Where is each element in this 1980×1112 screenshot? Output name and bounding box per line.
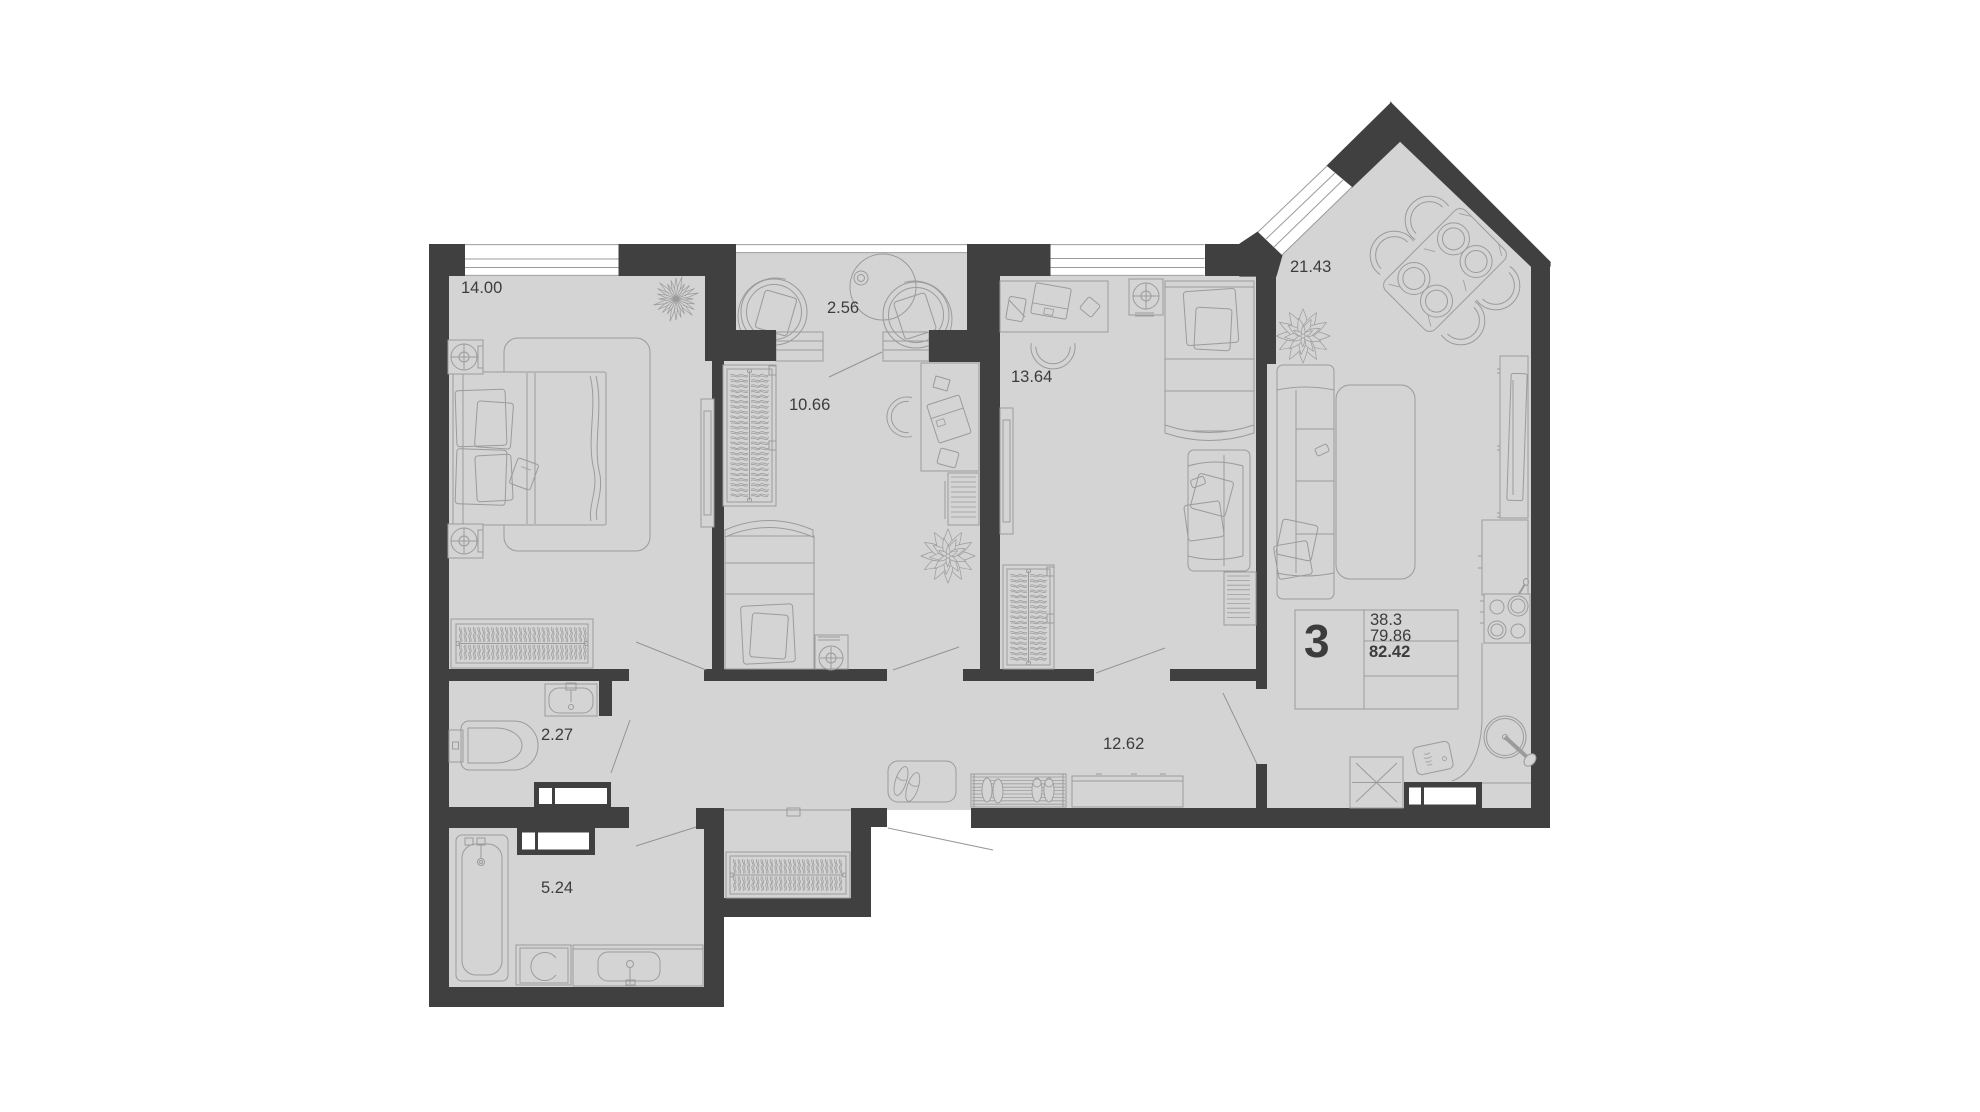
svg-text:13.64: 13.64 — [1011, 368, 1052, 386]
svg-text:82.42: 82.42 — [1369, 643, 1410, 661]
svg-text:2.56: 2.56 — [827, 299, 859, 317]
svg-text:10.66: 10.66 — [789, 396, 830, 414]
svg-text:5.24: 5.24 — [541, 879, 573, 897]
svg-text:21.43: 21.43 — [1290, 258, 1331, 276]
svg-text:12.62: 12.62 — [1103, 735, 1144, 753]
svg-text:14.00: 14.00 — [461, 279, 502, 297]
svg-text:3: 3 — [1304, 615, 1330, 667]
svg-text:2.27: 2.27 — [541, 726, 573, 744]
